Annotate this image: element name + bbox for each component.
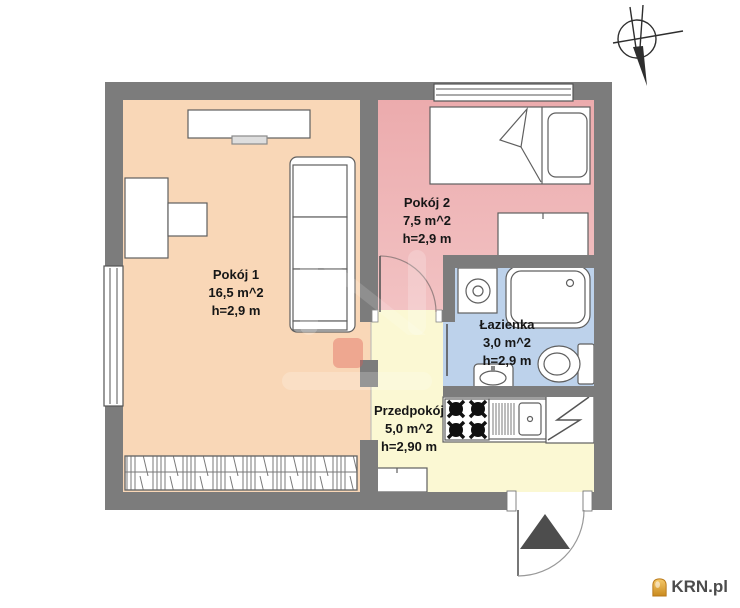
fridge [546,393,594,443]
room1-door-opening2 [360,387,371,440]
room-height: h=2,90 m [374,438,444,456]
room-name: Łazienka [480,316,535,334]
room-area: 5,0 m^2 [374,420,444,438]
dresser [498,213,588,262]
north-arrow-icon [613,5,683,86]
house-icon [650,576,669,597]
pillow [548,113,587,177]
entrance-door [507,491,592,576]
window-room1 [104,266,123,406]
washing-machine [458,268,497,313]
room-height: h=2,9 m [480,352,535,370]
room1-door-opening-hall-side [371,322,378,360]
floor-plan-drawing [0,0,740,608]
room-name: Pokój 1 [208,266,263,284]
table-top-wall [188,110,310,138]
room-area: 3,0 m^2 [480,334,535,352]
desk-left-wall [125,178,168,258]
wall-bathroom-bottom [443,386,594,397]
room-area: 16,5 m^2 [208,284,263,302]
wall-bathroom-top [443,255,594,268]
room-label-lazienka: Łazienka 3,0 m^2 h=2,9 m [480,316,535,370]
wall-right [594,82,612,510]
room-height: h=2,9 m [208,302,263,320]
floor-plan-page: Pokój 1 16,5 m^2 h=2,9 m Pokój 2 7,5 m^2… [0,0,740,608]
door-bathroom [443,322,455,386]
room-label-przedpokoj: Przedpokój 5,0 m^2 h=2,90 m [374,402,444,456]
room-label-pokoj-2: Pokój 2 7,5 m^2 h=2,9 m [403,194,452,248]
room-area: 7,5 m^2 [403,212,452,230]
wall-bathroom-left [443,255,455,322]
desk-chair [168,203,207,236]
sofa-cushion [293,165,347,217]
room1-radiator [125,456,357,490]
kitchen-sink-unit [489,399,546,439]
room-name: Przedpokój [374,402,444,420]
room-label-pokoj-1: Pokój 1 16,5 m^2 h=2,9 m [208,266,263,320]
krn-logo: KRN.pl [650,576,728,597]
logo-text: KRN.pl [671,577,728,597]
entrance-arrow-icon [520,514,570,549]
room-height: h=2,9 m [403,230,452,248]
chair-at-table [232,136,267,144]
window-room2 [434,84,573,101]
room-name: Pokój 2 [403,194,452,212]
